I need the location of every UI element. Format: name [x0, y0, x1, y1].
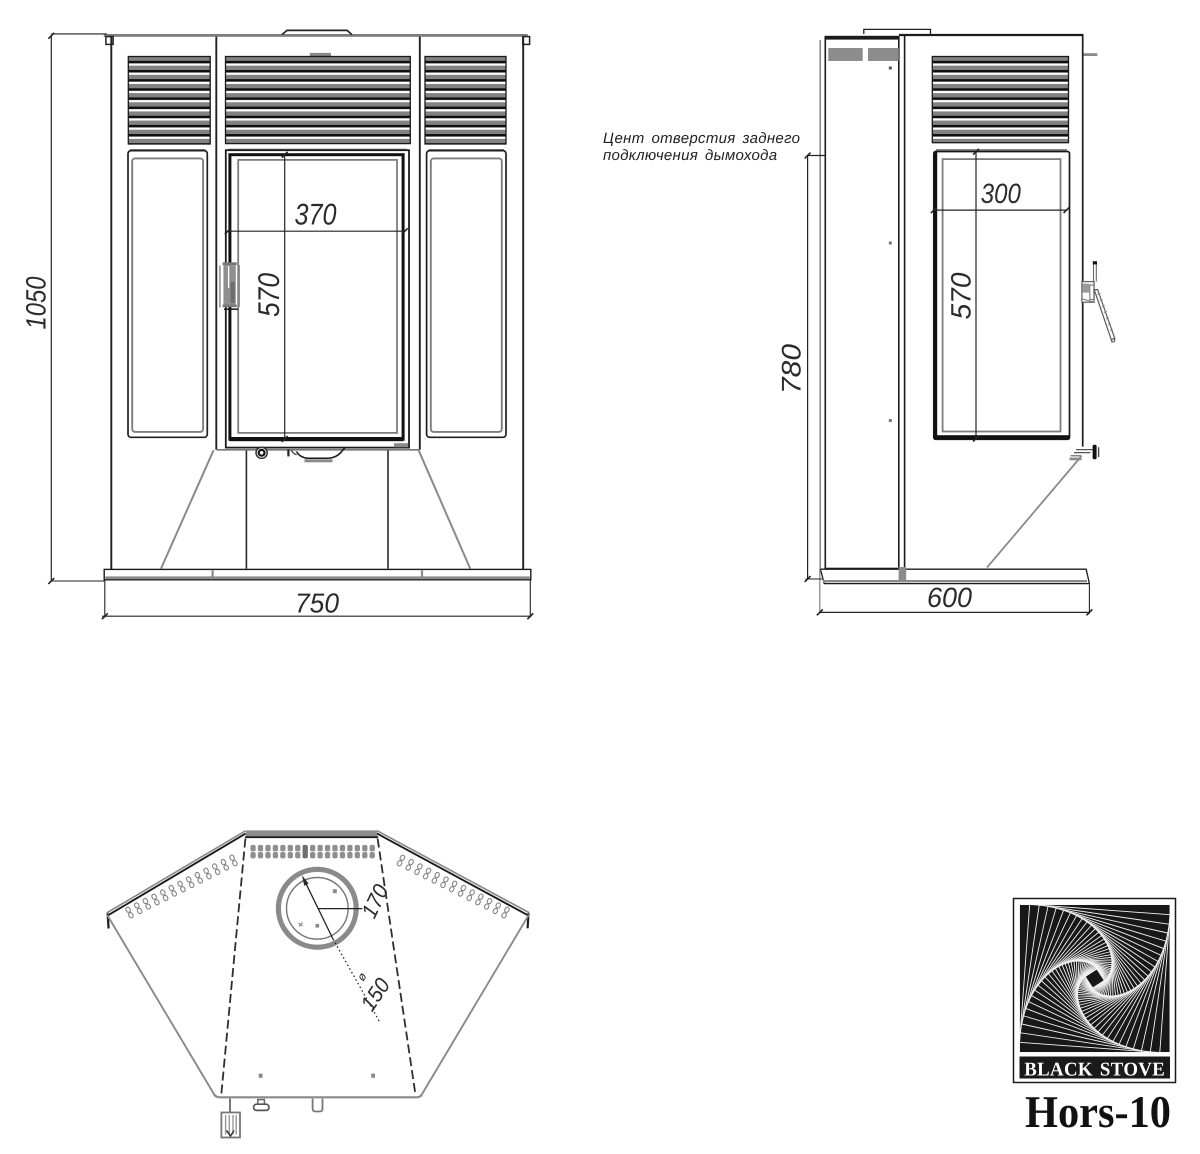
svg-text:BLACK STOVE: BLACK STOVE [1024, 1060, 1165, 1081]
svg-text:600: 600 [927, 582, 972, 613]
svg-text:780: 780 [776, 344, 806, 394]
svg-text:1050: 1050 [20, 276, 51, 329]
svg-text:300: 300 [981, 178, 1021, 209]
svg-text:570: 570 [945, 272, 976, 319]
svg-text:Hors-10: Hors-10 [1025, 1086, 1171, 1137]
svg-text:ø: ø [354, 969, 370, 983]
svg-text:Цент отверстия заднего: Цент отверстия заднего [603, 130, 800, 147]
svg-text:750: 750 [295, 587, 340, 618]
svg-text:570: 570 [253, 273, 286, 317]
svg-text:370: 370 [295, 198, 337, 231]
svg-text:170: 170 [356, 880, 394, 922]
svg-text:подключения дымохода: подключения дымохода [603, 147, 777, 164]
